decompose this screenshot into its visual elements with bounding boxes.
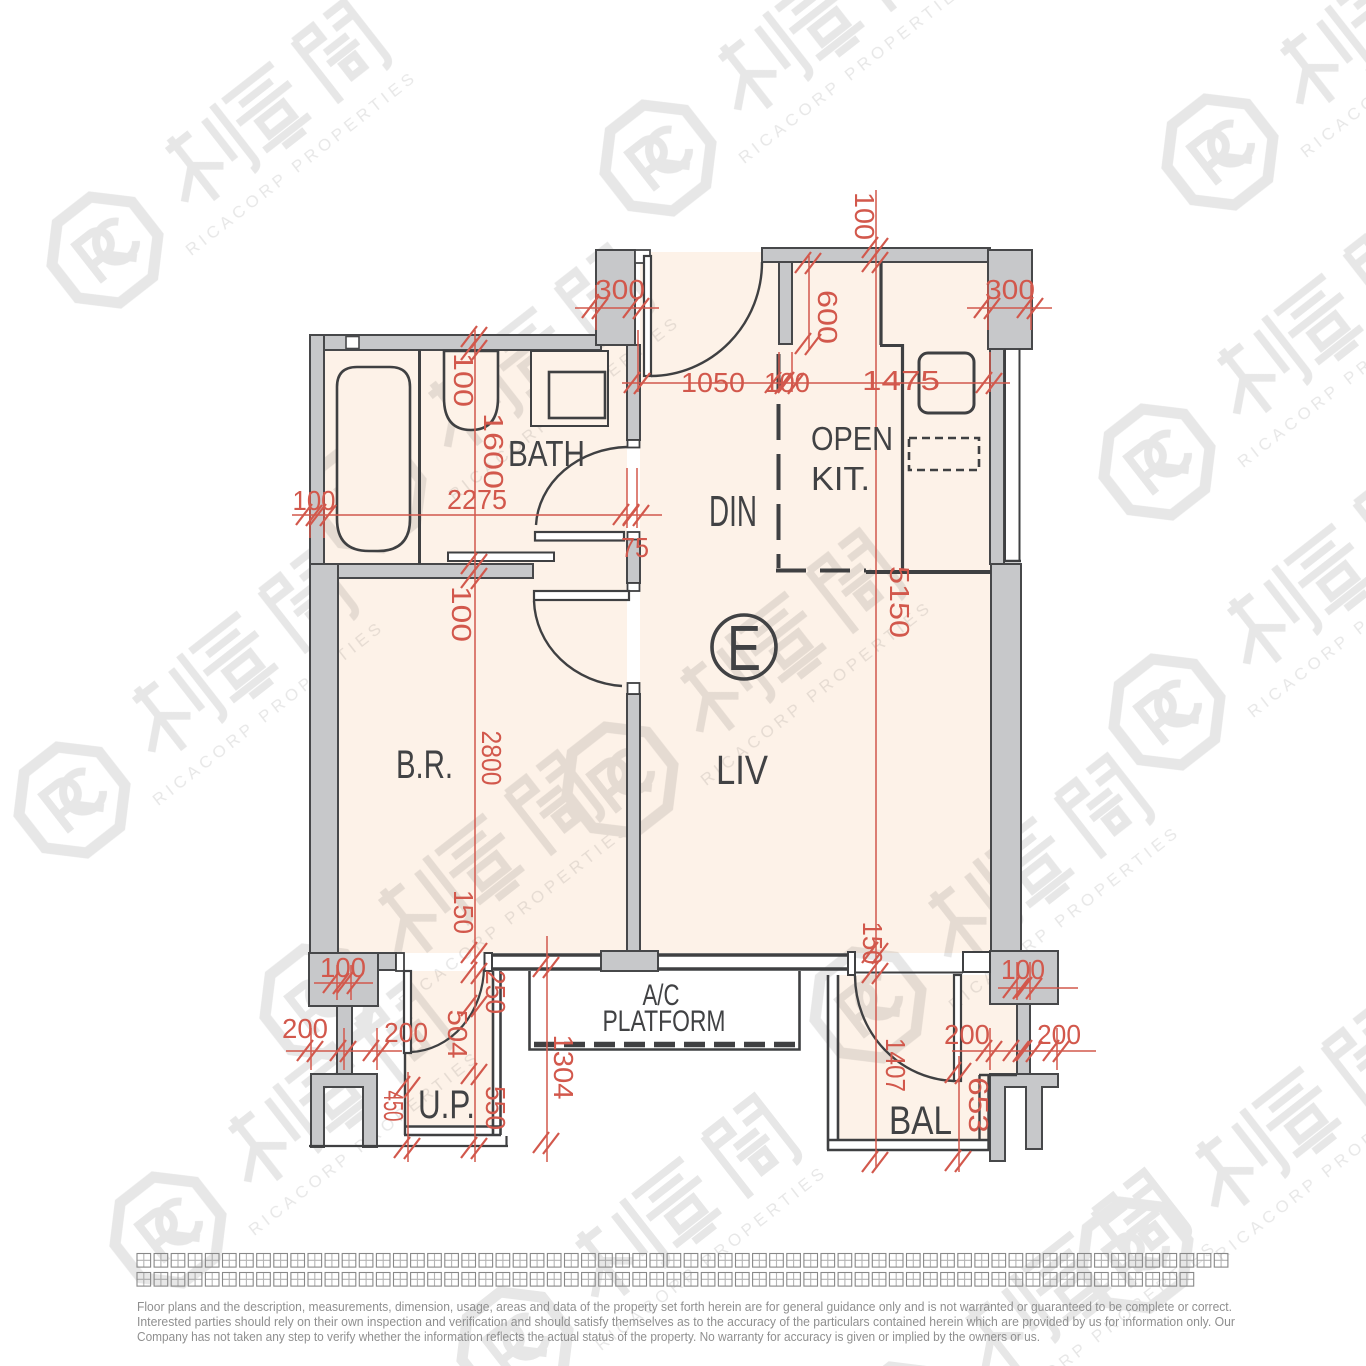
svg-text:150: 150	[448, 890, 479, 934]
svg-text:600: 600	[812, 290, 843, 344]
svg-text:450: 450	[378, 1091, 409, 1122]
svg-text:200: 200	[944, 1019, 990, 1050]
svg-text:1600: 1600	[478, 413, 509, 489]
svg-text:653: 653	[963, 1077, 994, 1133]
svg-text:100: 100	[448, 353, 479, 407]
svg-text:1050: 1050	[681, 367, 745, 398]
svg-text:Interested parties should rely: Interested parties should rely on their …	[137, 1314, 1236, 1329]
svg-text:100: 100	[1001, 954, 1045, 985]
svg-text:U.P.: U.P.	[418, 1083, 475, 1127]
svg-text:Company has not taken any step: Company has not taken any step to verify…	[137, 1329, 1040, 1344]
svg-text:100: 100	[849, 192, 880, 240]
svg-text:BAL: BAL	[889, 1099, 952, 1143]
svg-text:KIT.: KIT.	[811, 460, 870, 497]
svg-text:100: 100	[293, 485, 336, 516]
svg-text:150: 150	[857, 922, 888, 965]
svg-text:BATH: BATH	[508, 433, 585, 474]
svg-text:LIV: LIV	[716, 747, 769, 793]
svg-text:1407: 1407	[880, 1038, 911, 1092]
svg-text:PLATFORM: PLATFORM	[603, 1005, 726, 1038]
svg-text:200: 200	[1037, 1019, 1081, 1050]
svg-text:2800: 2800	[476, 731, 507, 786]
svg-text:550: 550	[480, 1086, 511, 1130]
svg-text:300: 300	[985, 274, 1035, 305]
svg-text:504: 504	[442, 1010, 473, 1059]
svg-text:200: 200	[282, 1013, 328, 1044]
svg-text:5150: 5150	[884, 566, 915, 638]
svg-text:1304: 1304	[548, 1035, 579, 1100]
svg-text:300: 300	[595, 274, 645, 305]
svg-text:B.R.: B.R.	[396, 743, 453, 787]
svg-text:75: 75	[621, 532, 649, 563]
svg-text:250: 250	[480, 970, 511, 1014]
svg-text:200: 200	[384, 1017, 428, 1048]
svg-text:1475: 1475	[862, 365, 940, 396]
svg-text:DIN: DIN	[709, 487, 757, 536]
svg-text:OPEN: OPEN	[811, 420, 893, 457]
svg-text:Floor plans and the descriptio: Floor plans and the description, measure…	[137, 1299, 1232, 1314]
svg-text:100: 100	[764, 367, 810, 398]
svg-text:100: 100	[446, 586, 477, 642]
svg-text:100: 100	[320, 952, 366, 983]
svg-text:E: E	[727, 612, 761, 684]
